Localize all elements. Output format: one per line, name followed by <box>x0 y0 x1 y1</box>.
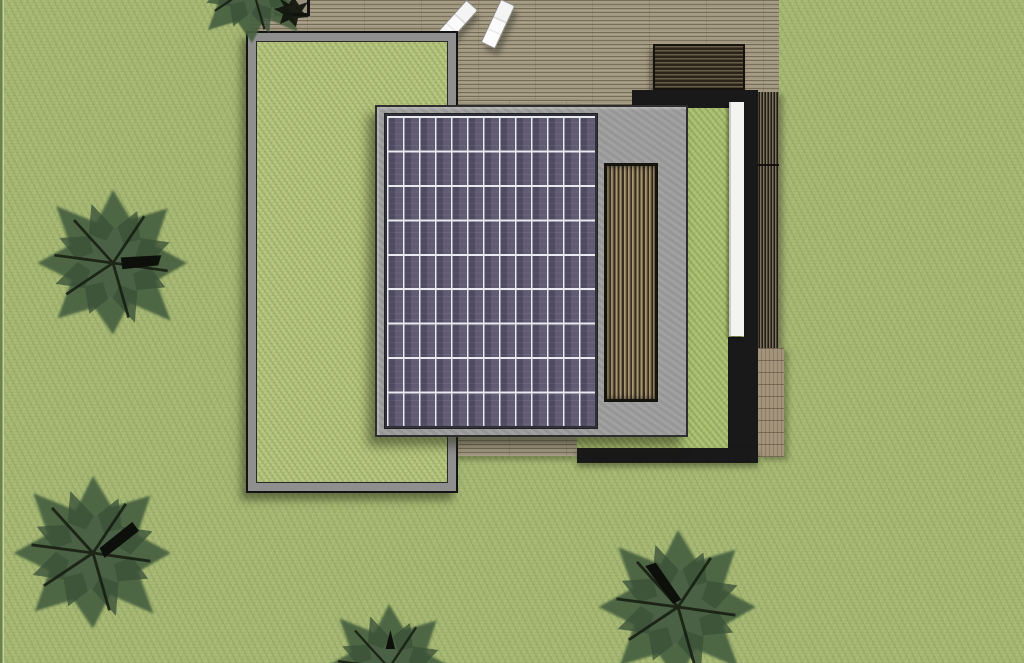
left-boundary-strip <box>0 0 5 663</box>
solar-panel-array <box>385 114 597 428</box>
louvre-walkway <box>757 92 779 348</box>
parapet-frame-bottom <box>577 448 758 463</box>
site-plan-canvas <box>0 0 1024 663</box>
wood-walkway <box>757 348 784 457</box>
parapet-frame-right <box>744 90 758 463</box>
skylight-strip <box>729 102 744 336</box>
slatted-bench <box>653 44 745 90</box>
planter-box <box>274 0 310 16</box>
green-roof-right-sliver <box>577 435 647 449</box>
parapet-frame-mid <box>728 337 744 449</box>
main-roof <box>375 105 688 437</box>
wood-slat-recess <box>604 163 658 402</box>
